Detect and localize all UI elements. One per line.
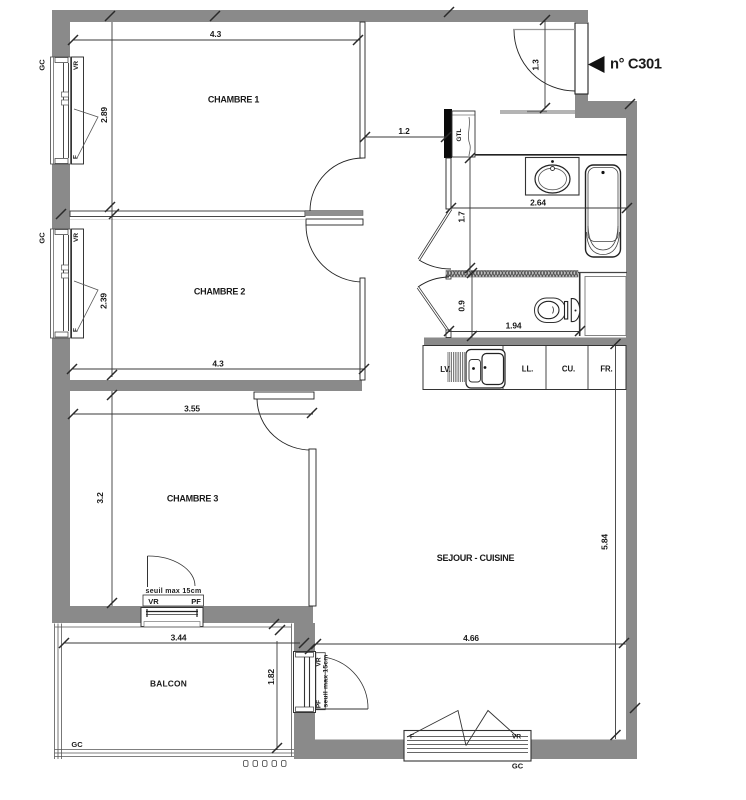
svg-text:VR: VR (512, 734, 521, 741)
svg-text:1.94: 1.94 (506, 321, 522, 331)
svg-text:CHAMBRE 1: CHAMBRE 1 (208, 95, 259, 105)
svg-text:2.39: 2.39 (99, 293, 109, 309)
svg-text:VR: VR (316, 657, 323, 666)
svg-text:seuil max 15cm: seuil max 15cm (323, 654, 330, 707)
svg-text:GC: GC (38, 59, 47, 71)
svg-text:GC: GC (38, 232, 47, 244)
svg-text:F: F (410, 734, 414, 741)
svg-text:PF: PF (316, 700, 323, 708)
svg-text:VR: VR (73, 233, 80, 242)
svg-text:5.84: 5.84 (600, 534, 610, 550)
svg-text:GC: GC (512, 762, 524, 771)
svg-text:2.64: 2.64 (530, 198, 546, 208)
svg-text:GC: GC (71, 740, 83, 749)
svg-text:VR: VR (148, 597, 159, 606)
svg-text:CHAMBRE 2: CHAMBRE 2 (194, 287, 245, 297)
svg-text:n° C301: n° C301 (610, 57, 662, 73)
svg-text:CHAMBRE 3: CHAMBRE 3 (167, 494, 218, 504)
svg-text:GTL: GTL (456, 128, 463, 141)
svg-text:1.3: 1.3 (531, 59, 541, 71)
svg-text:LV.: LV. (440, 365, 451, 374)
svg-text:FR.: FR. (600, 365, 612, 374)
svg-text:CU.: CU. (562, 365, 575, 374)
svg-text:2.89: 2.89 (99, 107, 109, 123)
svg-text:1.2: 1.2 (398, 126, 410, 136)
svg-text:3.44: 3.44 (171, 633, 187, 643)
svg-text:VR: VR (73, 61, 80, 70)
svg-text:seuil max 15cm: seuil max 15cm (146, 588, 202, 595)
svg-text:F: F (73, 155, 80, 159)
svg-text:3.2: 3.2 (95, 492, 105, 504)
svg-text:LL.: LL. (522, 365, 533, 374)
svg-text:F: F (73, 328, 80, 332)
svg-text:1.7: 1.7 (457, 211, 467, 223)
svg-text:3.55: 3.55 (184, 404, 200, 414)
svg-text:4.3: 4.3 (210, 29, 222, 39)
svg-text:4.3: 4.3 (212, 359, 224, 369)
svg-text:1.82: 1.82 (266, 669, 276, 685)
svg-text:0.9: 0.9 (457, 300, 467, 312)
svg-text:BALCON: BALCON (150, 679, 187, 689)
svg-text:SEJOUR - CUISINE: SEJOUR - CUISINE (437, 553, 515, 563)
svg-text:PF: PF (191, 597, 201, 606)
svg-text:4.66: 4.66 (463, 633, 479, 643)
